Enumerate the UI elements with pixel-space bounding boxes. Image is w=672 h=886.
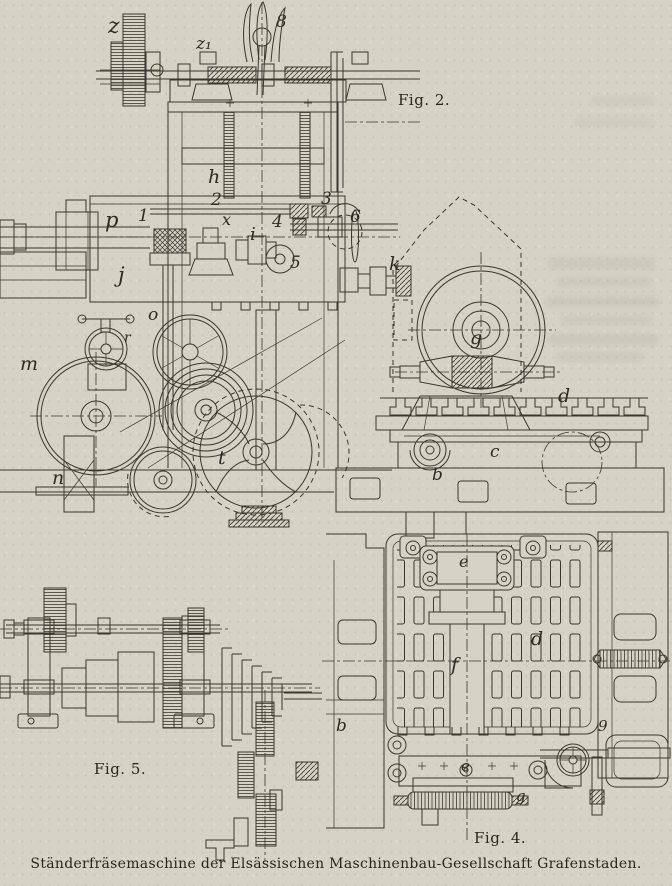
fig2-knee-box — [0, 196, 411, 430]
part-label-c: c — [490, 444, 500, 461]
part-label-5: 5 — [290, 255, 301, 272]
part-label-f: f — [451, 656, 458, 675]
fig4-drawing — [322, 532, 670, 840]
part-label-b-fig4: b — [336, 718, 347, 735]
part-label-x: x — [222, 212, 231, 228]
fig2-belt-pulley — [331, 52, 420, 192]
figure-caption-fig2: Fig. 2. — [398, 93, 450, 108]
figure-caption-fig4: Fig. 4. — [474, 831, 526, 846]
part-label-e-clamp: e — [459, 554, 468, 570]
part-label-m: m — [20, 355, 38, 374]
part-label-j: j — [118, 265, 125, 286]
part-label-4: 4 — [272, 214, 283, 231]
part-label-e-slide: e — [461, 759, 470, 774]
part-label-d-table: d — [558, 387, 570, 406]
part-label-z1: z₁ — [196, 36, 212, 53]
part-label-o: o — [148, 307, 158, 324]
part-label-6: 6 — [350, 209, 361, 226]
part-label-8: 8 — [276, 14, 287, 31]
figure-caption-fig5: Fig. 5. — [94, 762, 146, 777]
part-label-h: h — [208, 168, 220, 187]
part-label-t: t — [218, 449, 226, 468]
fig2-overarm-and-bracket — [0, 200, 150, 298]
part-label-i: i — [250, 226, 256, 244]
part-label-r: r — [124, 331, 131, 345]
fig4-right-rail — [593, 532, 670, 787]
fig2-drive-pulley-m — [30, 352, 162, 512]
fig5-drawing — [0, 588, 322, 862]
part-label-9: 9 — [598, 719, 608, 734]
scanned-page: Fig. 2. Fig. 5. Fig. 4. z z₁ 8 h 2 p 1 x… — [0, 0, 672, 886]
engraving-artwork — [0, 0, 672, 886]
part-label-g-wheel: g — [470, 329, 482, 348]
page-caption: Ständerfräsemaschine der Elsässischen Ma… — [0, 856, 672, 872]
fig4-cross-slide — [388, 727, 608, 825]
part-label-2: 2 — [211, 192, 222, 209]
fig2-elevating-handwheel — [78, 315, 134, 390]
part-label-g-worm: g — [516, 789, 526, 804]
fig2-end-view — [336, 197, 664, 538]
part-label-k: k — [389, 255, 401, 274]
part-label-1: 1 — [138, 208, 149, 225]
part-label-d-fig4: d — [531, 630, 543, 649]
part-label-p: p — [105, 210, 118, 231]
fig2-column — [168, 2, 346, 522]
part-label-z: z — [108, 16, 120, 38]
fig2-feed-gear-cluster — [0, 310, 392, 527]
part-label-3: 3 — [321, 191, 332, 208]
part-label-n: n — [52, 469, 64, 488]
fig2-drawing — [0, 2, 664, 538]
part-label-b-bed: b — [432, 467, 443, 484]
fig4-left-rail — [326, 534, 384, 828]
